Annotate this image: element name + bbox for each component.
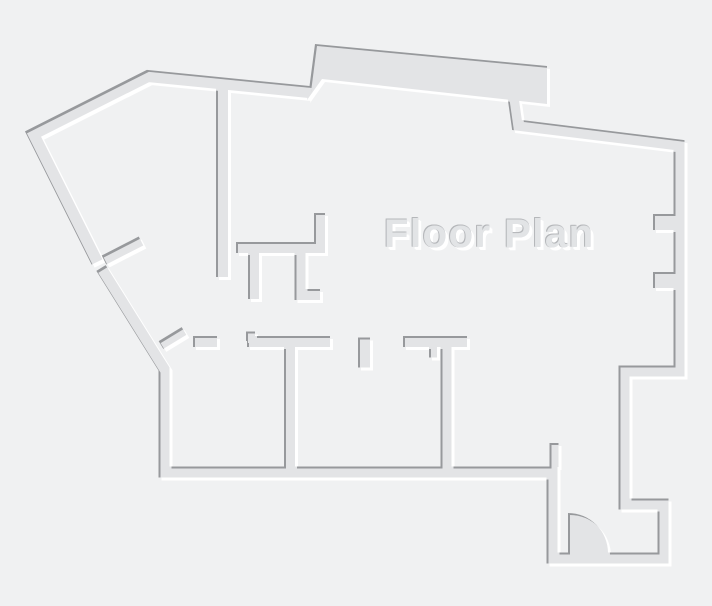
floor-plan-svg <box>0 0 712 606</box>
floor-plan-title: Floor Plan <box>384 212 595 257</box>
floor-plan-canvas: Floor Plan <box>0 0 712 606</box>
